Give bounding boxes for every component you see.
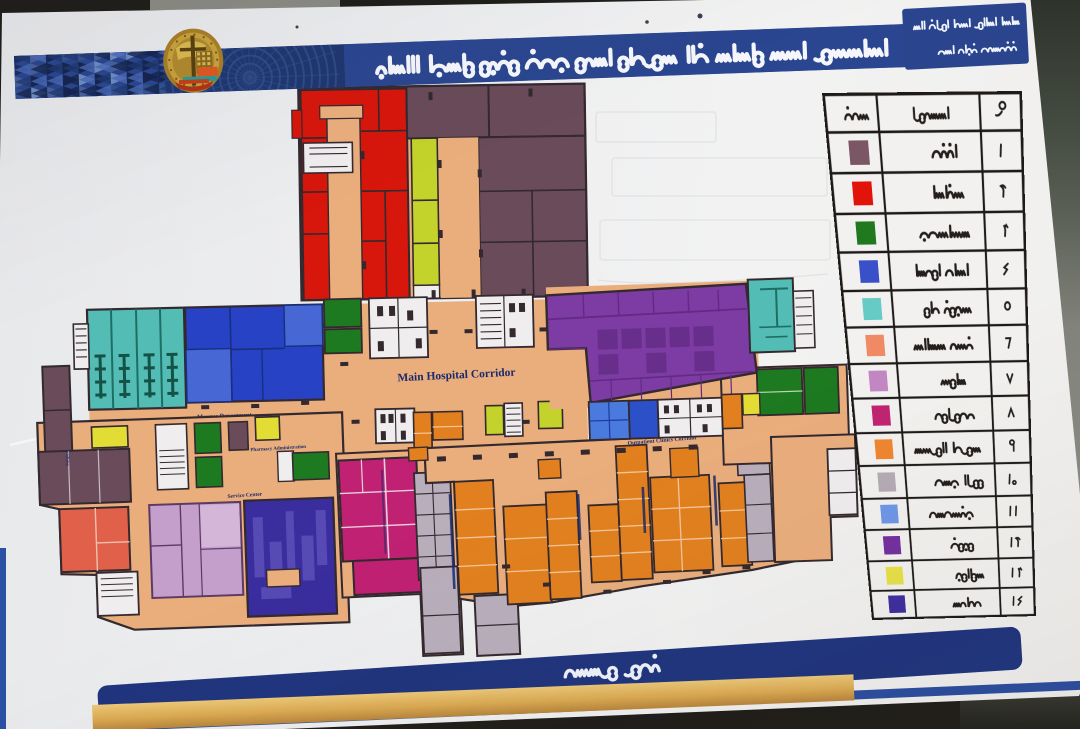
svg-text:Surgical: Surgical <box>64 449 70 466</box>
